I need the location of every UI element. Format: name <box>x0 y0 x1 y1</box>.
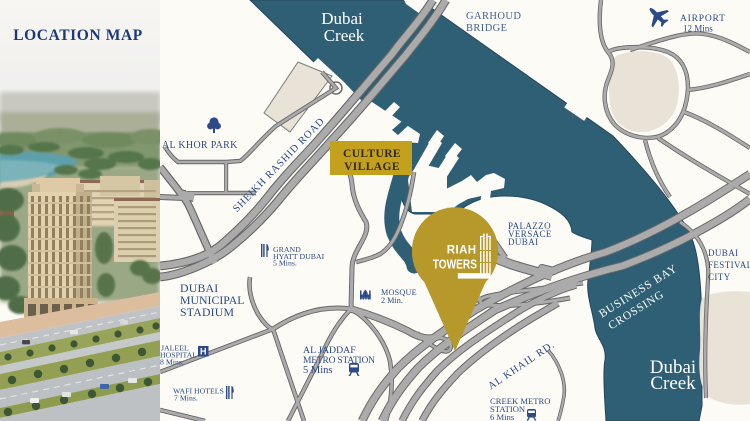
svg-text:BRIDGE: BRIDGE <box>466 23 507 34</box>
svg-text:5 Mins.: 5 Mins. <box>273 259 297 268</box>
svg-text:7 Mins.: 7 Mins. <box>174 394 198 403</box>
svg-text:Creek: Creek <box>650 373 696 394</box>
svg-text:6 Mins: 6 Mins <box>490 412 515 421</box>
svg-text:AL JADDAF: AL JADDAF <box>303 345 356 356</box>
svg-text:FESTIVAL: FESTIVAL <box>708 260 750 270</box>
svg-text:TOWERS: TOWERS <box>433 257 477 271</box>
svg-text:VILLAGE: VILLAGE <box>344 161 400 173</box>
svg-text:STADIUM: STADIUM <box>180 305 235 319</box>
svg-text:CITY: CITY <box>708 272 731 282</box>
svg-text:AIRPORT: AIRPORT <box>680 14 726 24</box>
svg-text:Creek: Creek <box>324 26 365 45</box>
svg-text:5 Mins: 5 Mins <box>303 365 332 376</box>
svg-text:2 Min.: 2 Min. <box>381 296 403 305</box>
svg-text:RIAH: RIAH <box>447 245 477 257</box>
svg-text:AL KHOR PARK: AL KHOR PARK <box>162 140 238 151</box>
svg-text:LOCATION MAP: LOCATION MAP <box>13 27 143 44</box>
svg-text:GARHOUD: GARHOUD <box>466 11 521 22</box>
svg-text:DUBAI: DUBAI <box>508 237 539 247</box>
svg-text:12 Mins: 12 Mins <box>683 24 713 34</box>
svg-text:8 Mins.: 8 Mins. <box>160 358 184 367</box>
svg-text:DUBAI: DUBAI <box>708 248 739 258</box>
svg-text:CULTURE: CULTURE <box>343 148 401 160</box>
svg-text:H: H <box>200 347 207 357</box>
